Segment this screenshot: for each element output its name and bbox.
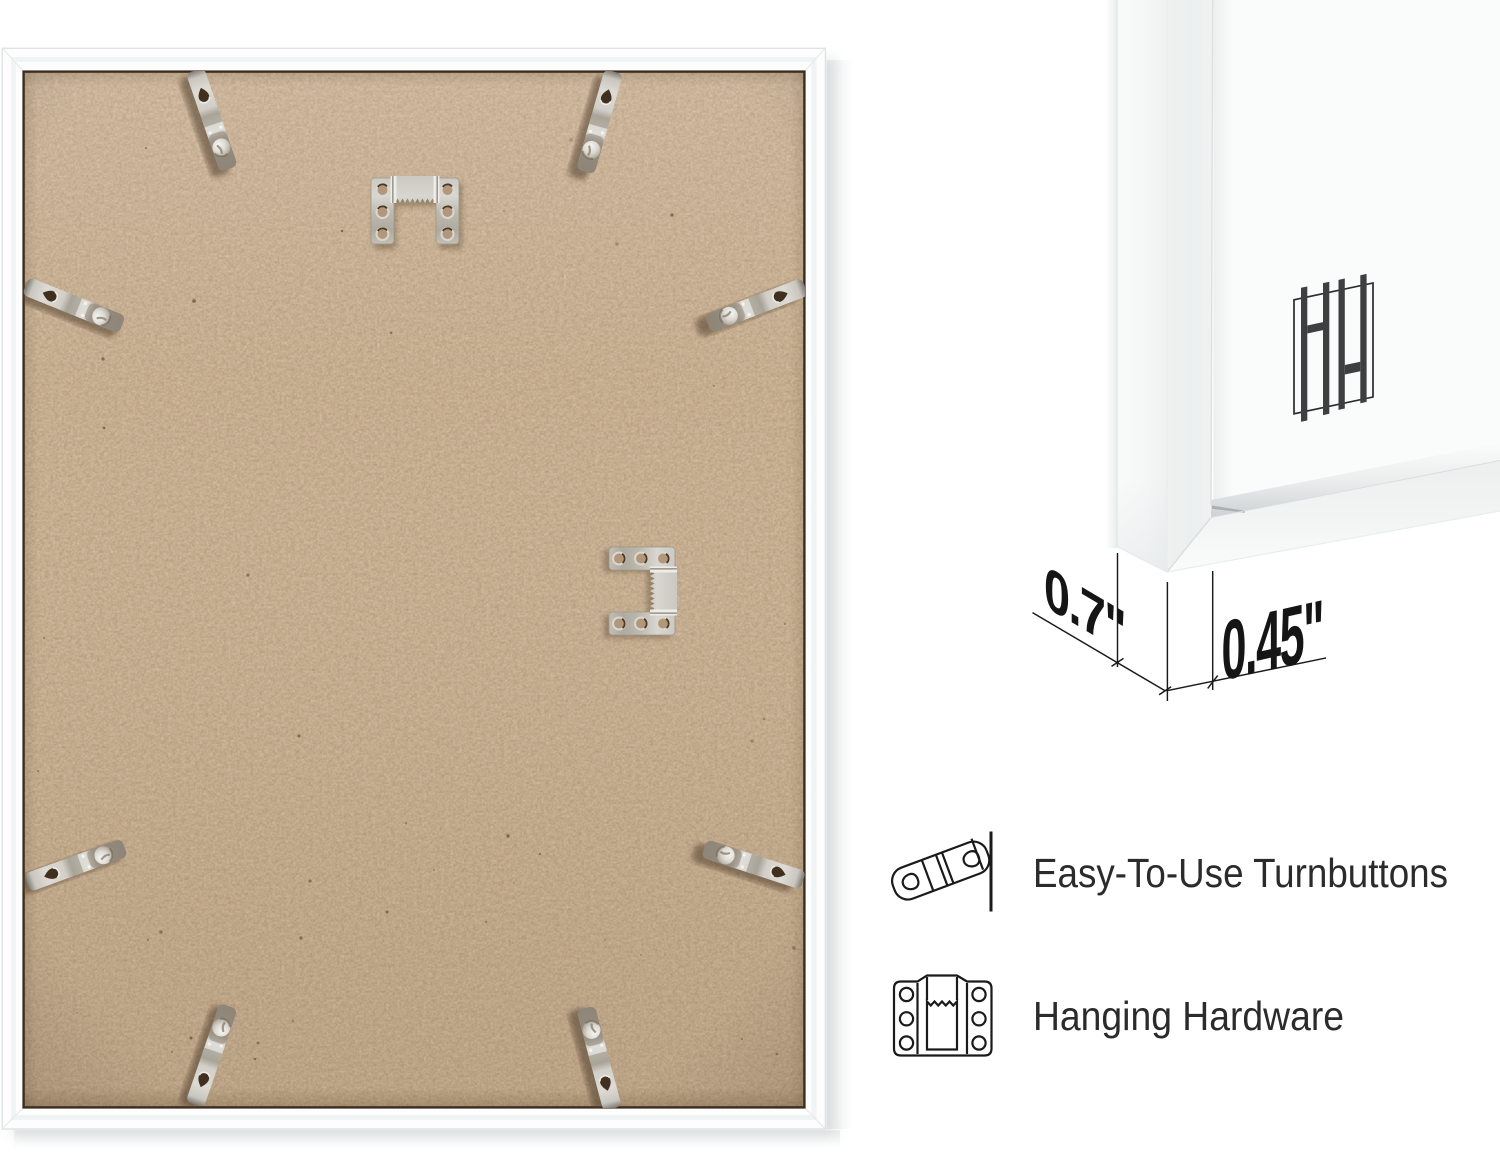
svg-text:Hanging Hardware: Hanging Hardware — [1033, 993, 1344, 1039]
svg-text:0.7": 0.7" — [1044, 553, 1125, 668]
svg-text:0.45": 0.45" — [1222, 583, 1324, 699]
svg-text:Easy-To-Use Turnbuttons: Easy-To-Use Turnbuttons — [1033, 850, 1448, 896]
